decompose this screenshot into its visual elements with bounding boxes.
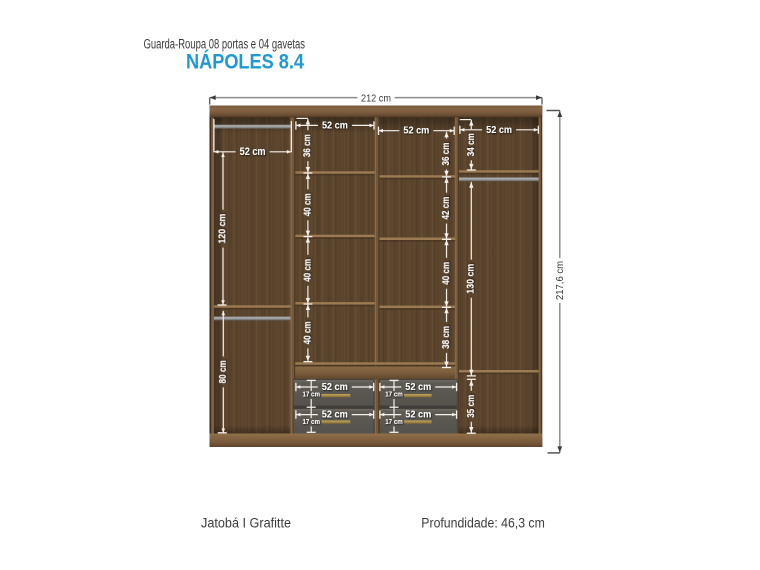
svg-text:38 cm: 38 cm bbox=[441, 326, 452, 349]
svg-text:217,6 cm: 217,6 cm bbox=[554, 261, 566, 300]
svg-text:NÁPOLES 8.4: NÁPOLES 8.4 bbox=[186, 50, 304, 73]
svg-text:Jatobá I Grafitte: Jatobá I Grafitte bbox=[201, 516, 291, 531]
svg-text:40 cm: 40 cm bbox=[302, 193, 313, 216]
svg-text:17 cm: 17 cm bbox=[385, 391, 403, 398]
svg-text:36 cm: 36 cm bbox=[441, 143, 452, 166]
svg-text:52 cm: 52 cm bbox=[322, 381, 348, 393]
svg-text:52 cm: 52 cm bbox=[405, 381, 431, 393]
svg-text:Guarda-Roupa 08 portas e 04 ga: Guarda-Roupa 08 portas e 04 gavetas bbox=[144, 36, 306, 51]
svg-text:52 cm: 52 cm bbox=[405, 409, 431, 421]
svg-text:212 cm: 212 cm bbox=[361, 92, 391, 104]
svg-text:52 cm: 52 cm bbox=[322, 119, 348, 131]
svg-text:80 cm: 80 cm bbox=[218, 360, 229, 383]
svg-text:40 cm: 40 cm bbox=[302, 259, 313, 282]
svg-text:35 cm: 35 cm bbox=[466, 395, 477, 418]
svg-text:40 cm: 40 cm bbox=[441, 262, 452, 285]
svg-text:52 cm: 52 cm bbox=[486, 124, 512, 136]
svg-text:17 cm: 17 cm bbox=[302, 391, 320, 398]
svg-text:Profundidade: 46,3 cm: Profundidade: 46,3 cm bbox=[421, 516, 545, 531]
svg-text:40 cm: 40 cm bbox=[302, 321, 313, 344]
svg-text:34 cm: 34 cm bbox=[466, 133, 477, 156]
svg-text:17 cm: 17 cm bbox=[385, 419, 403, 426]
svg-text:52 cm: 52 cm bbox=[403, 125, 429, 137]
svg-text:52 cm: 52 cm bbox=[240, 146, 266, 158]
svg-text:36 cm: 36 cm bbox=[302, 134, 313, 157]
svg-text:120 cm: 120 cm bbox=[218, 214, 229, 244]
svg-text:130 cm: 130 cm bbox=[466, 264, 477, 294]
svg-text:42 cm: 42 cm bbox=[441, 197, 452, 220]
svg-text:52 cm: 52 cm bbox=[322, 409, 348, 421]
svg-text:17 cm: 17 cm bbox=[302, 419, 320, 426]
